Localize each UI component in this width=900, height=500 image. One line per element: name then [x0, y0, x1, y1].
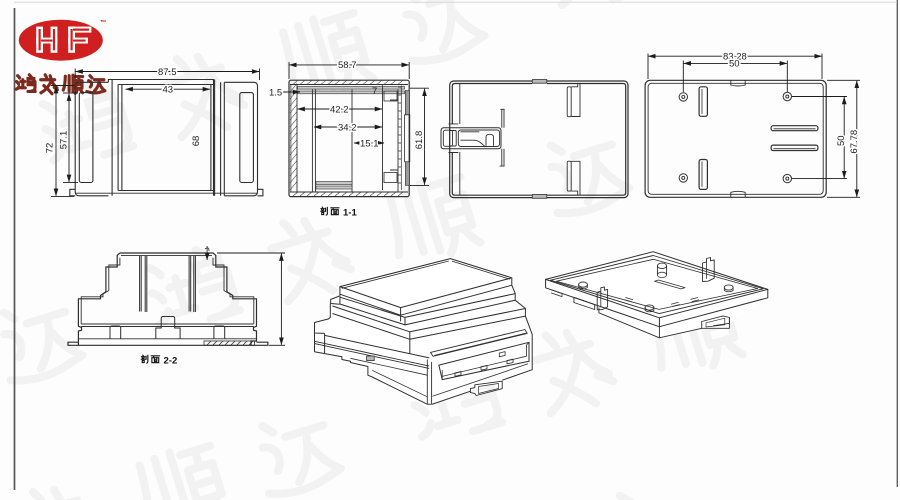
svg-text:2-2: 2-2: [164, 356, 178, 367]
svg-text:™: ™: [100, 20, 107, 27]
svg-text:34.2: 34.2: [338, 122, 357, 133]
svg-text:15.1: 15.1: [360, 138, 379, 149]
svg-text:72: 72: [45, 143, 56, 154]
svg-text:43: 43: [163, 84, 174, 95]
svg-text:50: 50: [836, 135, 847, 146]
svg-text:1-1: 1-1: [343, 208, 357, 219]
svg-text:67.78: 67.78: [849, 130, 860, 154]
svg-text:58.7: 58.7: [338, 60, 357, 71]
svg-text:42.2: 42.2: [330, 104, 349, 115]
svg-text:50: 50: [729, 59, 740, 70]
svg-text:87.5: 87.5: [158, 67, 177, 78]
svg-text:7: 7: [372, 86, 377, 97]
svg-text:1.5: 1.5: [269, 88, 282, 99]
svg-text:57.1: 57.1: [59, 131, 70, 150]
svg-text:61.8: 61.8: [414, 131, 425, 150]
svg-text:68: 68: [191, 136, 202, 147]
